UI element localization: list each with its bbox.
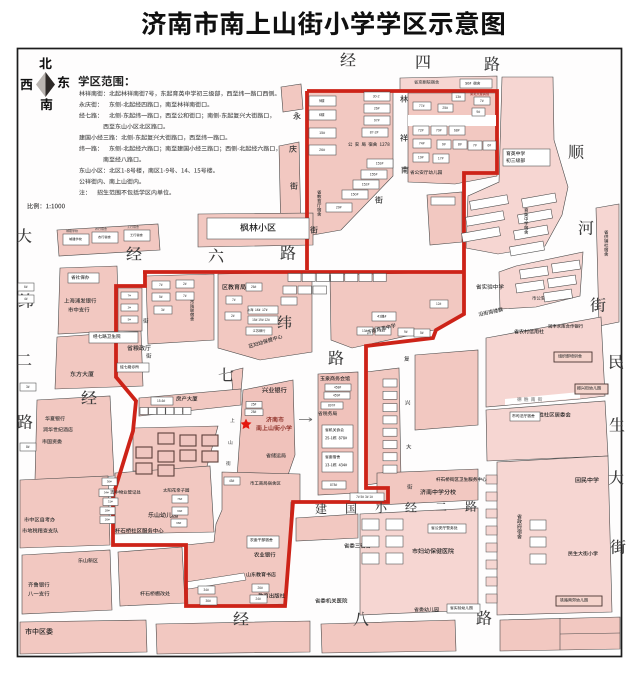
svg-text:69#: 69#	[177, 509, 182, 513]
svg-text:2#: 2#	[183, 282, 187, 286]
svg-text:87-2#: 87-2#	[370, 130, 379, 134]
svg-text:68#: 68#	[454, 128, 460, 132]
svg-text:878#: 878#	[330, 483, 337, 487]
svg-text:7#: 7#	[128, 293, 132, 297]
svg-text:150#: 150#	[351, 192, 359, 196]
svg-text:7#: 7#	[473, 143, 477, 147]
svg-text:9#: 9#	[476, 110, 480, 114]
svg-text:7# 5# 3# 1#: 7# 5# 3# 1#	[356, 495, 373, 499]
svg-text:36#: 36#	[206, 599, 212, 603]
svg-text:15# 19# 12#: 15# 19# 12#	[252, 318, 270, 322]
svg-text:45#: 45#	[229, 479, 235, 483]
svg-text:153#: 153#	[376, 161, 384, 165]
svg-text:6#: 6#	[487, 143, 491, 147]
svg-text:5#: 5#	[128, 317, 132, 321]
svg-text:2#: 2#	[231, 314, 235, 318]
svg-text:25#: 25#	[251, 403, 257, 407]
svg-text:19#: 19#	[418, 155, 424, 159]
svg-text:34#: 34#	[104, 491, 109, 495]
svg-text:34#: 34#	[204, 588, 210, 592]
svg-text:897#: 897#	[328, 403, 335, 407]
svg-text:7#: 7#	[183, 294, 187, 298]
svg-text:31#: 31#	[108, 500, 113, 504]
svg-text:155#: 155#	[370, 172, 378, 176]
svg-text:74#: 74#	[419, 141, 425, 145]
svg-text:76#: 76#	[177, 497, 182, 501]
svg-text:3#: 3#	[161, 308, 165, 312]
svg-text:13#: 13#	[362, 329, 368, 333]
svg-text:7#: 7#	[232, 298, 236, 302]
svg-text:15#: 15#	[319, 131, 325, 135]
svg-text:17#: 17#	[438, 156, 444, 160]
svg-text:459#: 459#	[333, 393, 340, 397]
svg-text:72#: 72#	[418, 128, 424, 132]
svg-text:9#: 9#	[404, 330, 408, 334]
svg-text:4#: 4#	[24, 297, 28, 301]
svg-text:26#: 26#	[374, 106, 380, 110]
svg-text:9#: 9#	[442, 142, 446, 146]
svg-text:458#: 458#	[334, 385, 341, 389]
svg-text:152#: 152#	[362, 182, 370, 186]
svg-text:5#: 5#	[159, 295, 163, 299]
svg-text:25#: 25#	[442, 106, 448, 110]
svg-text:30-2: 30-2	[373, 94, 380, 98]
svg-text:26#: 26#	[258, 586, 264, 590]
svg-text:7#: 7#	[159, 283, 163, 287]
svg-text:26#: 26#	[105, 518, 110, 522]
svg-text:36#: 36#	[107, 480, 112, 484]
svg-text:97#: 97#	[374, 118, 380, 122]
svg-text:24#: 24#	[256, 597, 262, 601]
svg-text:7#: 7#	[480, 99, 484, 103]
svg-text:8#: 8#	[458, 142, 462, 146]
svg-text:5#: 5#	[420, 331, 424, 335]
svg-text:3#: 3#	[26, 385, 30, 389]
svg-text:29#: 29#	[336, 205, 342, 209]
svg-text:28#: 28#	[105, 509, 110, 513]
svg-text:8#: 8#	[26, 445, 30, 449]
svg-text:26#: 26#	[319, 148, 325, 152]
svg-text:6#: 6#	[24, 285, 28, 289]
svg-text:28#: 28#	[251, 410, 257, 414]
svg-text:26#: 26#	[251, 285, 257, 289]
svg-text:70#: 70#	[436, 128, 442, 132]
svg-text:15-6#: 15-6#	[157, 399, 165, 403]
svg-text:12#: 12#	[436, 302, 442, 306]
svg-text:77#: 77#	[419, 104, 425, 108]
svg-text:2#: 2#	[128, 305, 132, 309]
svg-text:13#: 13#	[455, 95, 461, 99]
svg-text:68#: 68#	[176, 521, 181, 525]
